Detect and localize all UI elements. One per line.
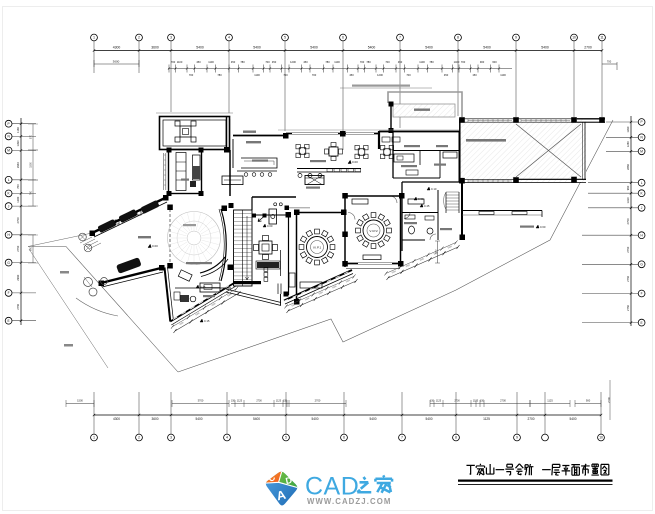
svg-text:V.I.P.2: V.I.P.2 — [369, 229, 378, 233]
svg-text:5400: 5400 — [253, 46, 261, 50]
svg-text:1125: 1125 — [276, 400, 282, 403]
svg-text:3: 3 — [170, 36, 172, 40]
svg-text:5400: 5400 — [368, 46, 376, 50]
svg-text:450: 450 — [303, 60, 308, 64]
svg-text:570: 570 — [30, 134, 33, 139]
svg-text:1330: 1330 — [626, 197, 630, 203]
svg-text:9: 9 — [516, 436, 518, 440]
svg-text:1100: 1100 — [177, 60, 183, 64]
svg-text:2750: 2750 — [626, 246, 630, 252]
svg-text:1500: 1500 — [77, 399, 83, 403]
svg-text:F: F — [8, 291, 10, 295]
svg-text:2700: 2700 — [584, 46, 592, 50]
svg-text:3: 3 — [170, 436, 172, 440]
svg-text:M: M — [640, 150, 643, 154]
svg-text:3700: 3700 — [198, 399, 204, 403]
svg-text:P: P — [641, 120, 643, 124]
svg-text:2750: 2750 — [626, 305, 630, 311]
svg-text:2750: 2750 — [16, 245, 20, 251]
svg-text:0.45: 0.45 — [424, 204, 430, 208]
svg-text:700: 700 — [360, 60, 365, 64]
svg-text:700: 700 — [406, 73, 411, 77]
svg-text:780: 780 — [325, 60, 330, 64]
svg-text:900: 900 — [586, 399, 591, 403]
svg-text:3600: 3600 — [151, 46, 159, 50]
svg-text:780: 780 — [429, 60, 434, 64]
svg-text:5400: 5400 — [195, 417, 202, 421]
svg-text:1125: 1125 — [436, 400, 442, 403]
svg-text:600: 600 — [492, 60, 497, 64]
svg-text:M: M — [7, 149, 10, 153]
svg-text:7: 7 — [399, 36, 401, 40]
svg-text:2750: 2750 — [16, 217, 20, 223]
svg-text:0.10: 0.10 — [431, 187, 437, 191]
svg-text:1390: 1390 — [626, 126, 630, 132]
svg-text:E: E — [641, 321, 643, 325]
svg-text:1280: 1280 — [626, 141, 630, 147]
svg-text:1280: 1280 — [16, 196, 20, 202]
svg-text:1400: 1400 — [454, 60, 460, 64]
svg-text:450: 450 — [272, 60, 277, 64]
svg-text:700: 700 — [265, 60, 270, 64]
svg-text:1100: 1100 — [419, 60, 425, 64]
svg-text:150: 150 — [480, 400, 485, 403]
svg-text:2700: 2700 — [256, 400, 262, 403]
svg-text:2940: 2940 — [16, 162, 20, 168]
svg-text:700: 700 — [312, 73, 317, 77]
svg-text:5400: 5400 — [253, 417, 260, 421]
svg-text:5400: 5400 — [569, 417, 576, 421]
svg-text:1: 1 — [93, 36, 95, 40]
svg-text:700: 700 — [461, 60, 466, 64]
svg-text:2860: 2860 — [626, 164, 630, 170]
svg-text:5400: 5400 — [310, 46, 318, 50]
svg-text:5400: 5400 — [196, 46, 204, 50]
svg-text:0.15: 0.15 — [200, 285, 206, 289]
svg-text:450: 450 — [444, 73, 449, 77]
svg-text:5: 5 — [284, 36, 286, 40]
svg-text:2700: 2700 — [500, 399, 506, 403]
svg-text:3600: 3600 — [151, 417, 158, 421]
svg-text:L: L — [641, 181, 643, 185]
svg-text:2750: 2750 — [626, 218, 630, 224]
svg-text:V.I.P.1: V.I.P.1 — [313, 245, 322, 249]
svg-text:1390: 1390 — [16, 140, 20, 146]
svg-text:2700: 2700 — [454, 400, 460, 403]
svg-text:150: 150 — [472, 73, 477, 77]
svg-text:2990: 2990 — [16, 274, 20, 280]
svg-text:5400: 5400 — [541, 46, 549, 50]
svg-text:3600: 3600 — [113, 60, 120, 64]
svg-text:4: 4 — [226, 436, 228, 440]
svg-text:9: 9 — [515, 36, 517, 40]
svg-text:760: 760 — [30, 190, 33, 195]
svg-text:1125: 1125 — [237, 400, 243, 403]
svg-text:2700: 2700 — [315, 399, 321, 403]
svg-text:2700: 2700 — [607, 397, 611, 403]
svg-text:1125: 1125 — [483, 417, 490, 421]
svg-text:700: 700 — [607, 60, 612, 64]
svg-text:5400: 5400 — [425, 417, 432, 421]
svg-text:10: 10 — [572, 36, 576, 40]
svg-text:7: 7 — [401, 436, 403, 440]
svg-text:1180: 1180 — [16, 127, 20, 133]
svg-text:6: 6 — [342, 36, 344, 40]
svg-text:1100: 1100 — [500, 73, 506, 77]
svg-text:700: 700 — [171, 60, 176, 64]
svg-text:1200: 1200 — [377, 73, 383, 77]
svg-text:5400: 5400 — [369, 417, 376, 421]
svg-text:1100: 1100 — [334, 60, 340, 64]
svg-text:8: 8 — [455, 436, 457, 440]
svg-text:L: L — [8, 178, 10, 182]
svg-text:150: 150 — [283, 400, 288, 403]
svg-text:700: 700 — [189, 73, 194, 77]
svg-text:6: 6 — [343, 436, 345, 440]
svg-text:700: 700 — [385, 60, 390, 64]
svg-text:0.30: 0.30 — [418, 197, 424, 201]
svg-text:0.15: 0.15 — [204, 319, 210, 323]
svg-text:960: 960 — [626, 185, 630, 190]
svg-text:1125: 1125 — [547, 399, 553, 403]
svg-text:WWW.CADZJ.COM: WWW.CADZJ.COM — [307, 497, 391, 506]
svg-text:1200: 1200 — [290, 60, 296, 64]
svg-text:4: 4 — [228, 36, 230, 40]
svg-text:0.00: 0.00 — [267, 224, 273, 228]
svg-text:E: E — [8, 319, 10, 323]
svg-text:5400: 5400 — [483, 46, 491, 50]
svg-text:780: 780 — [240, 60, 245, 64]
svg-text:2750: 2750 — [16, 303, 20, 309]
svg-text:2: 2 — [138, 36, 140, 40]
svg-text:780: 780 — [366, 60, 371, 64]
svg-text:2750: 2750 — [626, 275, 630, 281]
svg-text:10: 10 — [599, 436, 603, 440]
svg-text:2700: 2700 — [527, 417, 534, 421]
svg-text:1500: 1500 — [30, 162, 33, 168]
svg-text:4300: 4300 — [113, 417, 120, 421]
svg-text:150: 150 — [430, 400, 435, 403]
svg-text:5: 5 — [285, 436, 287, 440]
svg-text:700: 700 — [283, 73, 288, 77]
svg-text:450: 450 — [196, 60, 201, 64]
svg-text:F: F — [641, 292, 643, 296]
svg-text:900: 900 — [480, 60, 485, 64]
svg-text:0.00: 0.00 — [152, 244, 158, 248]
svg-text:760: 760 — [16, 184, 20, 189]
svg-text:1: 1 — [93, 436, 95, 440]
svg-text:450: 450 — [231, 60, 236, 64]
svg-text:0.00: 0.00 — [352, 160, 358, 164]
svg-text:4300: 4300 — [113, 46, 121, 50]
svg-text:1100: 1100 — [254, 73, 260, 77]
svg-text:450: 450 — [398, 60, 403, 64]
svg-text:8: 8 — [457, 36, 459, 40]
svg-text:0.60: 0.60 — [540, 225, 546, 229]
svg-text:1100: 1100 — [208, 60, 214, 64]
svg-text:5400: 5400 — [425, 46, 433, 50]
svg-text:150: 150 — [231, 400, 236, 403]
svg-text:2: 2 — [138, 436, 140, 440]
svg-text:780: 780 — [217, 73, 222, 77]
svg-text:P: P — [8, 122, 10, 126]
svg-text:11: 11 — [600, 36, 604, 40]
svg-text:450: 450 — [349, 73, 354, 77]
svg-text:5400: 5400 — [311, 417, 318, 421]
